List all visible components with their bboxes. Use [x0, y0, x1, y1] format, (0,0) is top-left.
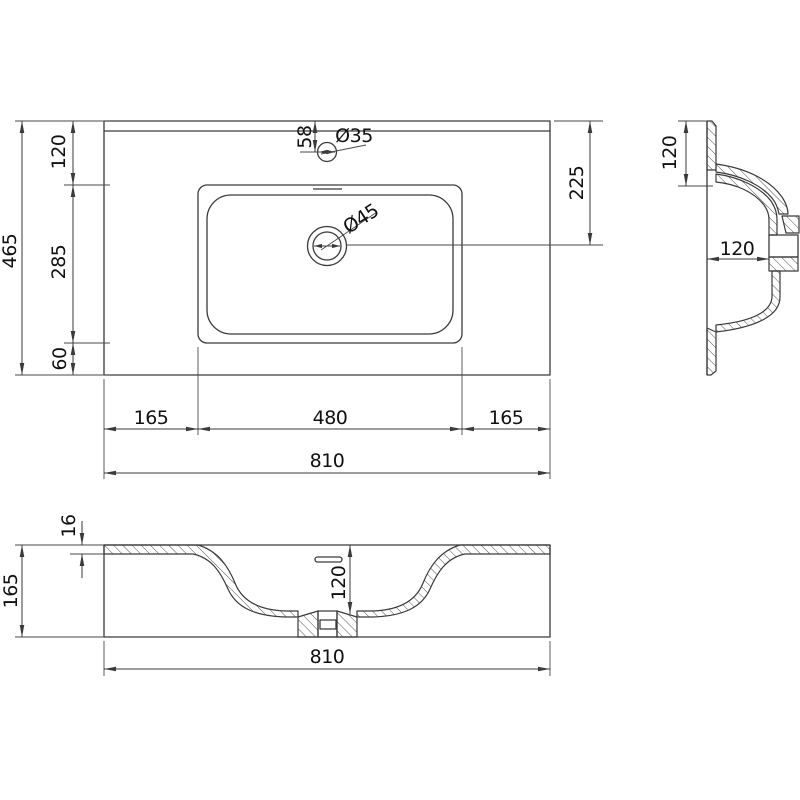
dim-plan-basin-depth: 285: [48, 245, 70, 280]
dim-plan-back-to-drain: 225: [566, 166, 588, 201]
dim-front-overall-height: 165: [0, 574, 22, 609]
side-top-deck-section: [707, 121, 716, 170]
front-outline: [104, 545, 550, 637]
dim-side-bowl-depth: 120: [720, 238, 755, 260]
front-drain-wall-right: [337, 611, 357, 637]
side-bowl-bottom-wall: [716, 271, 780, 332]
front-left-deck-and-wall-section: [104, 545, 298, 617]
dim-plan-left-to-basin: 165: [134, 407, 169, 429]
plan-countertop-outline: [104, 121, 550, 375]
front-section-view: 16 165 120 810: [0, 514, 550, 676]
dim-plan-faucet-hole-diameter: Ø35: [335, 125, 373, 147]
side-bottom-deck-section: [707, 328, 716, 375]
dim-front-rim-thickness: 16: [58, 514, 80, 537]
dim-plan-back-to-basin: 120: [48, 135, 70, 170]
dim-plan-basin-to-right: 165: [489, 407, 524, 429]
dim-plan-overall-depth: 465: [0, 234, 21, 269]
side-drain-flange-upper: [782, 216, 799, 233]
side-section-view: 120 120: [659, 121, 799, 375]
dim-plan-basin-to-front: 60: [49, 347, 71, 370]
technical-drawing: 465 120 285 60 58 Ø35 Ø45 225 165 480 16…: [0, 0, 800, 800]
side-drain-flange-lower: [769, 257, 798, 271]
front-drain-cavity: [318, 611, 337, 637]
plan-view: 465 120 285 60 58 Ø35 Ø45 225 165 480 16…: [0, 121, 603, 479]
front-drain-wall-left: [298, 611, 318, 637]
side-drain-cavity: [769, 235, 798, 257]
front-drain-opening: [320, 620, 336, 629]
dim-side-back-depth: 120: [659, 136, 681, 171]
dim-front-overall-width: 810: [310, 646, 345, 668]
dim-plan-drain-diameter: Ø45: [339, 200, 383, 239]
dim-plan-basin-width: 480: [313, 407, 348, 429]
dim-front-bowl-depth: 120: [328, 566, 350, 601]
front-overflow-slot: [315, 557, 342, 562]
plan-basin-rim: [198, 185, 462, 343]
dim-plan-faucet-offset: 58: [294, 125, 316, 148]
front-right-deck-and-wall-section: [357, 545, 550, 617]
front-dimension-lines: [22, 521, 550, 669]
dim-plan-overall-width: 810: [310, 450, 345, 472]
drawing-canvas: 465 120 285 60 58 Ø35 Ø45 225 165 480 16…: [0, 0, 800, 800]
plan-basin-inner-edge: [207, 195, 453, 334]
